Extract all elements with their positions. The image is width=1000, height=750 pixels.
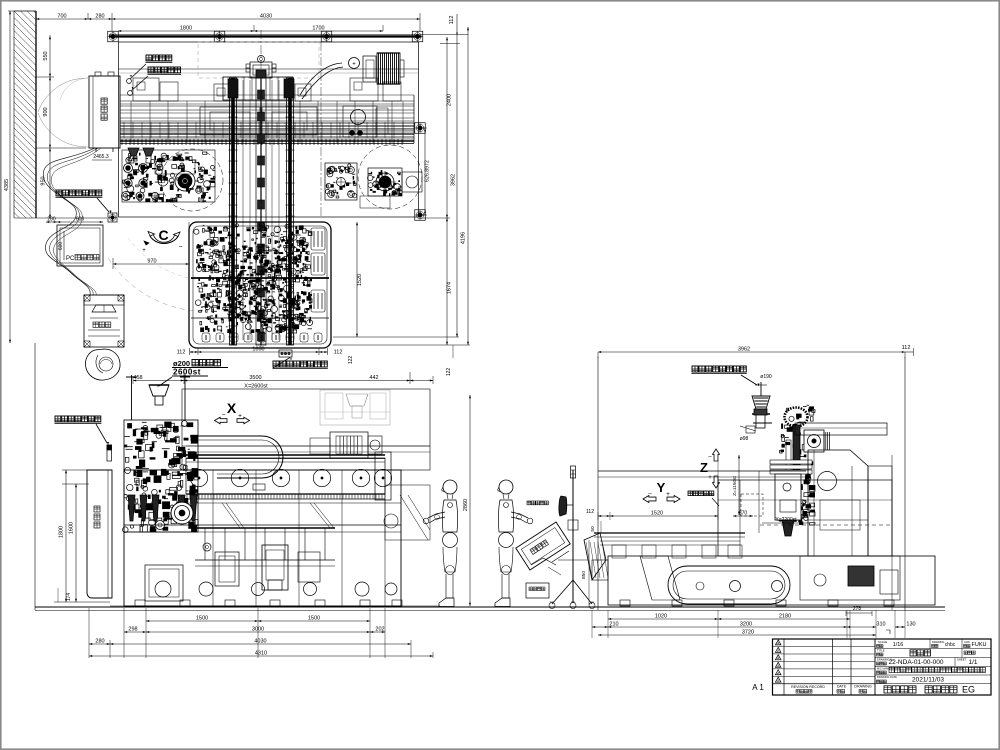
svg-text:112: 112: [334, 350, 343, 356]
svg-text:Y: Y: [657, 480, 666, 495]
svg-text:1520: 1520: [651, 511, 663, 517]
svg-text:900: 900: [43, 107, 49, 116]
svg-text:SCALE: SCALE: [878, 640, 887, 644]
svg-text:2860: 2860: [463, 499, 469, 511]
svg-text:112: 112: [449, 16, 455, 25]
svg-text:1600: 1600: [69, 522, 75, 534]
svg-text:X=2600st: X=2600st: [244, 384, 268, 390]
svg-text:EG: EG: [962, 684, 975, 694]
svg-text:4196: 4196: [461, 232, 467, 244]
svg-text:174: 174: [66, 593, 72, 602]
svg-text:2180: 2180: [779, 614, 791, 620]
svg-text:ø98: ø98: [740, 436, 749, 442]
svg-text:Z=1150st: Z=1150st: [732, 475, 738, 495]
svg-text:1520: 1520: [357, 274, 363, 286]
svg-text:280: 280: [95, 639, 104, 645]
svg-text:600: 600: [58, 242, 64, 251]
svg-text:1020: 1020: [655, 614, 667, 620]
svg-text:−: −: [221, 412, 225, 419]
svg-text:4385: 4385: [4, 179, 10, 191]
svg-text:SHEET: SHEET: [957, 658, 967, 662]
svg-text:280: 280: [47, 217, 56, 223]
svg-text:3500: 3500: [249, 375, 261, 381]
svg-text:Y=2200st: Y=2200st: [775, 517, 797, 523]
svg-text:202: 202: [375, 627, 384, 633]
svg-text:1800: 1800: [59, 526, 65, 538]
svg-text:122: 122: [446, 368, 452, 377]
svg-text:700: 700: [57, 14, 66, 20]
svg-text:FUKU: FUKU: [972, 642, 987, 648]
svg-text:3720: 3720: [742, 630, 754, 636]
svg-text:3962: 3962: [451, 174, 457, 186]
svg-text:626.8972: 626.8972: [425, 160, 431, 182]
svg-text:3962: 3962: [738, 347, 750, 353]
svg-text:2600st: 2600st: [173, 368, 201, 377]
svg-text:458: 458: [133, 375, 142, 381]
svg-text:550: 550: [43, 51, 49, 60]
svg-text:DATE: DATE: [837, 685, 847, 689]
svg-text:+: +: [352, 62, 356, 68]
svg-text:112: 112: [902, 345, 911, 351]
svg-text:1500: 1500: [196, 616, 208, 622]
svg-text:ø190: ø190: [760, 374, 772, 380]
svg-text:2465.3: 2465.3: [93, 154, 109, 160]
svg-text:442: 442: [369, 375, 378, 381]
svg-text:1500: 1500: [308, 616, 320, 622]
svg-text:50: 50: [590, 526, 596, 532]
svg-text:850: 850: [581, 571, 587, 579]
svg-text:2021/11/03: 2021/11/03: [912, 677, 944, 684]
svg-text:A 1: A 1: [752, 683, 764, 692]
svg-text:Z: Z: [700, 460, 708, 475]
svg-text:112: 112: [177, 350, 186, 356]
svg-text:+: +: [142, 248, 146, 254]
svg-text:1/1: 1/1: [968, 659, 977, 666]
svg-text:DRAWING: DRAWING: [854, 685, 871, 689]
svg-text:−: −: [708, 454, 712, 461]
svg-text:1/16: 1/16: [893, 642, 904, 648]
svg-text:600: 600: [76, 217, 85, 223]
svg-text:1800: 1800: [180, 26, 192, 32]
svg-text:4030: 4030: [260, 14, 272, 20]
svg-text:310: 310: [876, 622, 885, 628]
svg-text:PC: PC: [66, 256, 75, 262]
svg-text:1674: 1674: [447, 282, 453, 294]
svg-text:3200: 3200: [740, 622, 752, 628]
svg-text:CHK: CHK: [964, 640, 970, 644]
svg-text:2400: 2400: [447, 94, 453, 106]
svg-text:−: −: [178, 244, 182, 251]
svg-text:4310: 4310: [255, 651, 267, 657]
svg-text:298: 298: [128, 627, 137, 633]
svg-text:TITLE: TITLE: [877, 649, 885, 653]
svg-text:+: +: [708, 474, 712, 481]
svg-text:1700: 1700: [312, 26, 324, 32]
svg-text:280: 280: [95, 14, 104, 20]
svg-text:112: 112: [586, 509, 594, 515]
svg-text:chbc: chbc: [945, 642, 956, 648]
svg-text:X: X: [227, 400, 237, 416]
svg-text:DRAWING: DRAWING: [932, 640, 944, 644]
svg-text:122: 122: [348, 356, 354, 365]
svg-text:130: 130: [906, 622, 915, 628]
svg-text:C: C: [158, 227, 168, 243]
svg-text:M/C NAME: M/C NAME: [877, 667, 890, 671]
svg-text:22-NDA-01-00-000: 22-NDA-01-00-000: [889, 659, 944, 666]
svg-text:278: 278: [853, 606, 862, 612]
svg-text:1600: 1600: [252, 347, 264, 353]
svg-text:4030: 4030: [254, 639, 266, 645]
svg-text:DRAWING DATE: DRAWING DATE: [877, 675, 897, 679]
svg-text:REVISION RECORD: REVISION RECORD: [791, 685, 825, 689]
